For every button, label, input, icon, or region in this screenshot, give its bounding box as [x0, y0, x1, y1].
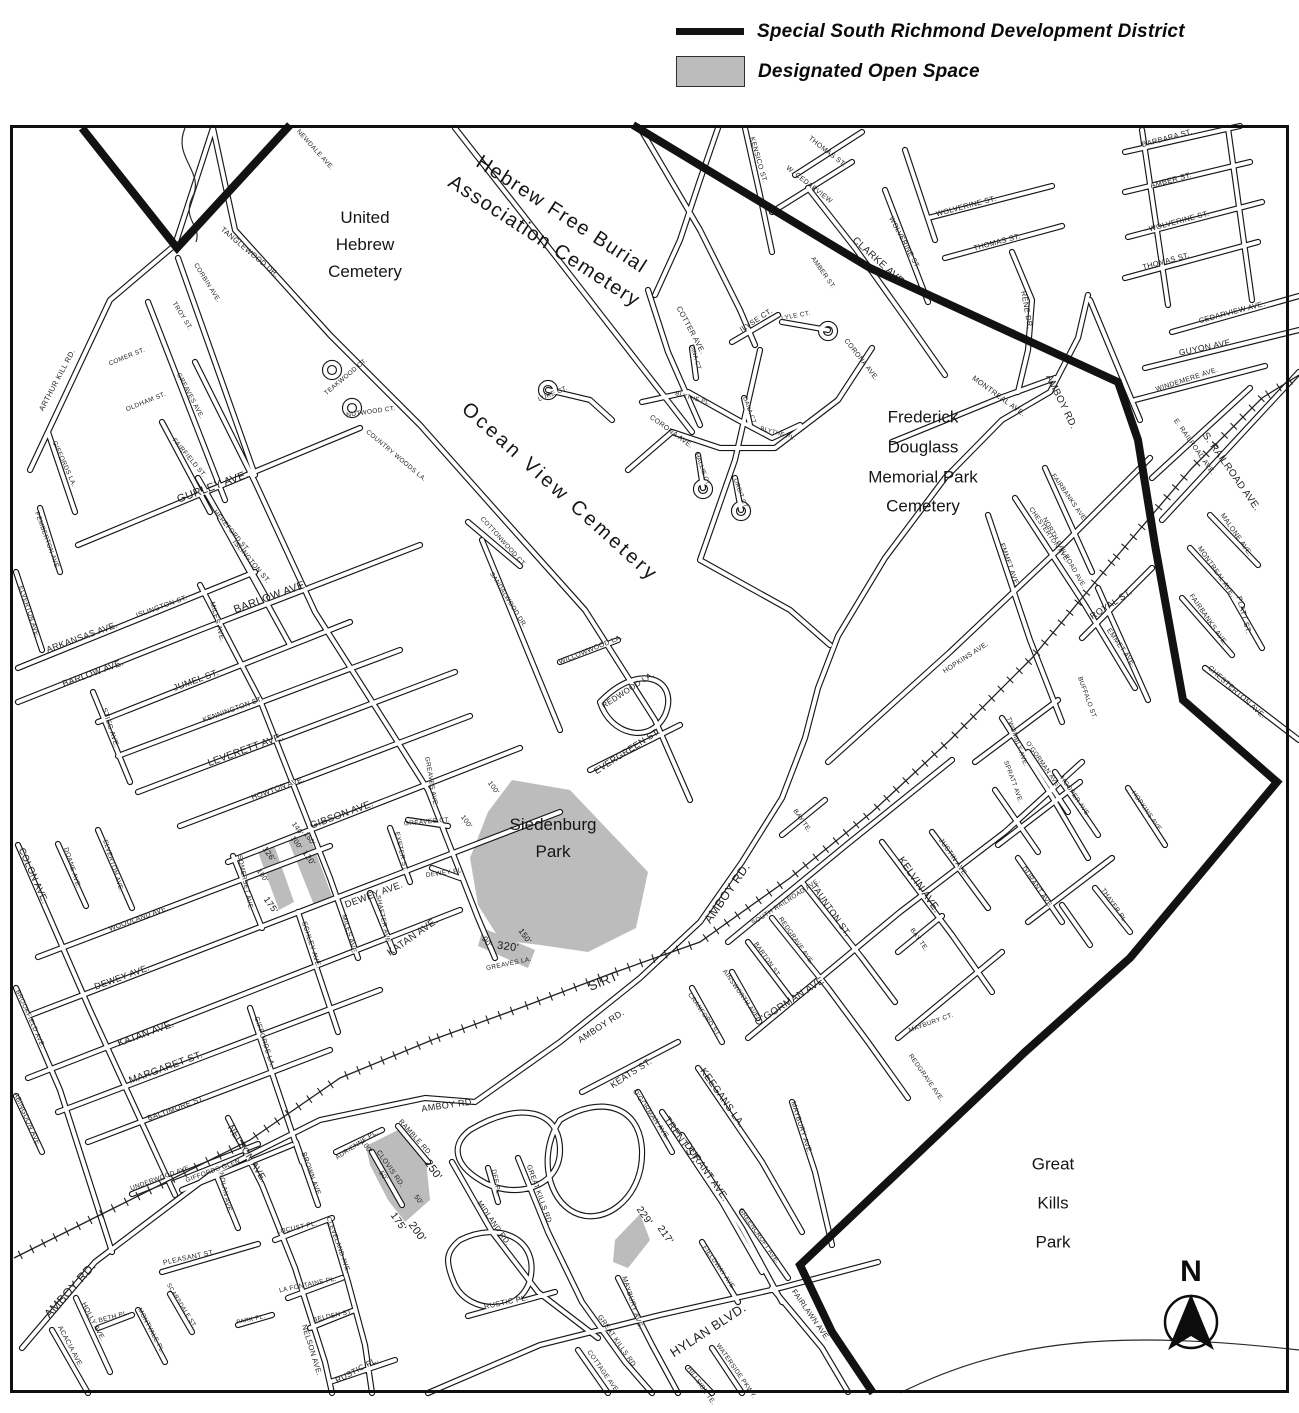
legend-item: Special South Richmond Development Distr…	[676, 16, 1185, 47]
legend: Special South Richmond Development Distr…	[676, 16, 1185, 96]
legend-item: Designated Open Space	[676, 56, 1185, 87]
map[interactable]: N ARTHUR KILL RD.TANGLEWOOD DR.NEWDALE A…	[0, 0, 1299, 1413]
road-network	[16, 126, 1299, 1393]
legend-item-label: Special South Richmond Development Distr…	[757, 21, 1185, 43]
legend-item-label: Designated Open Space	[758, 61, 980, 83]
map-canvas	[0, 0, 1299, 1413]
open-space-swatch-icon	[676, 56, 745, 87]
boundary-swatch-icon	[676, 28, 744, 35]
